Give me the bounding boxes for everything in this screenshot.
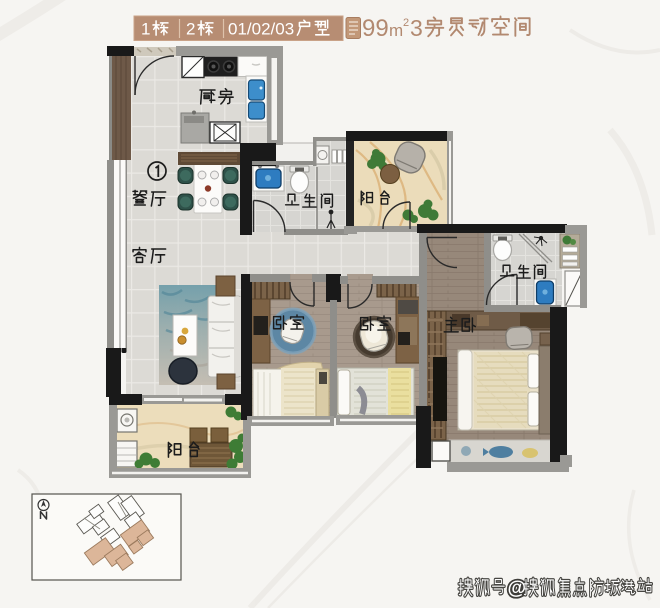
svg-text:3: 3 [410,15,423,41]
svg-text:2: 2 [403,17,409,29]
svg-text:1: 1 [141,20,150,39]
svg-text:2: 2 [186,20,195,39]
svg-text:m: m [389,21,403,40]
svg-text:99: 99 [362,15,389,42]
svg-text:01/02/03: 01/02/03 [228,20,294,39]
svg-text:@: @ [508,578,527,599]
